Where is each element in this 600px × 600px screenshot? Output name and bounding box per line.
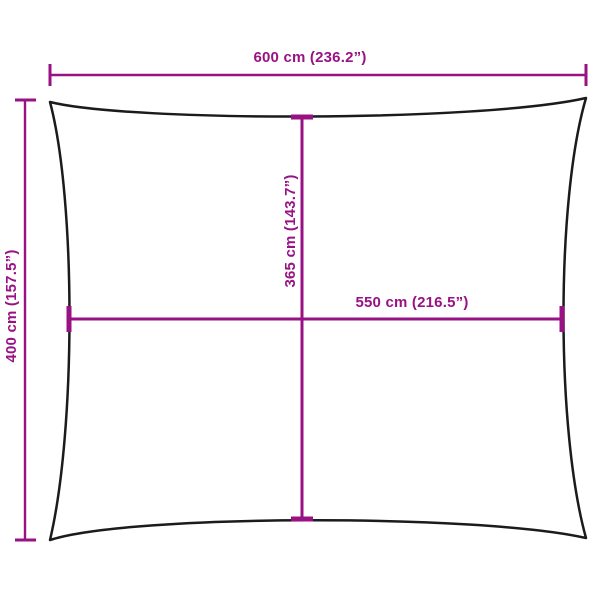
inner-width-dimension [69, 306, 562, 332]
dimension-diagram: 600 cm (236.2”) 400 cm (157.5”) 365 cm (… [0, 0, 600, 600]
overall-width-dimension [50, 64, 586, 86]
overall-height-label: 400 cm (157.5”) [3, 249, 21, 362]
overall-width-label: 600 cm (236.2”) [253, 49, 366, 67]
inner-width-label: 550 cm (216.5”) [355, 294, 468, 312]
inner-height-label: 365 cm (143.7”) [282, 174, 300, 287]
diagram-drawing [0, 0, 600, 600]
